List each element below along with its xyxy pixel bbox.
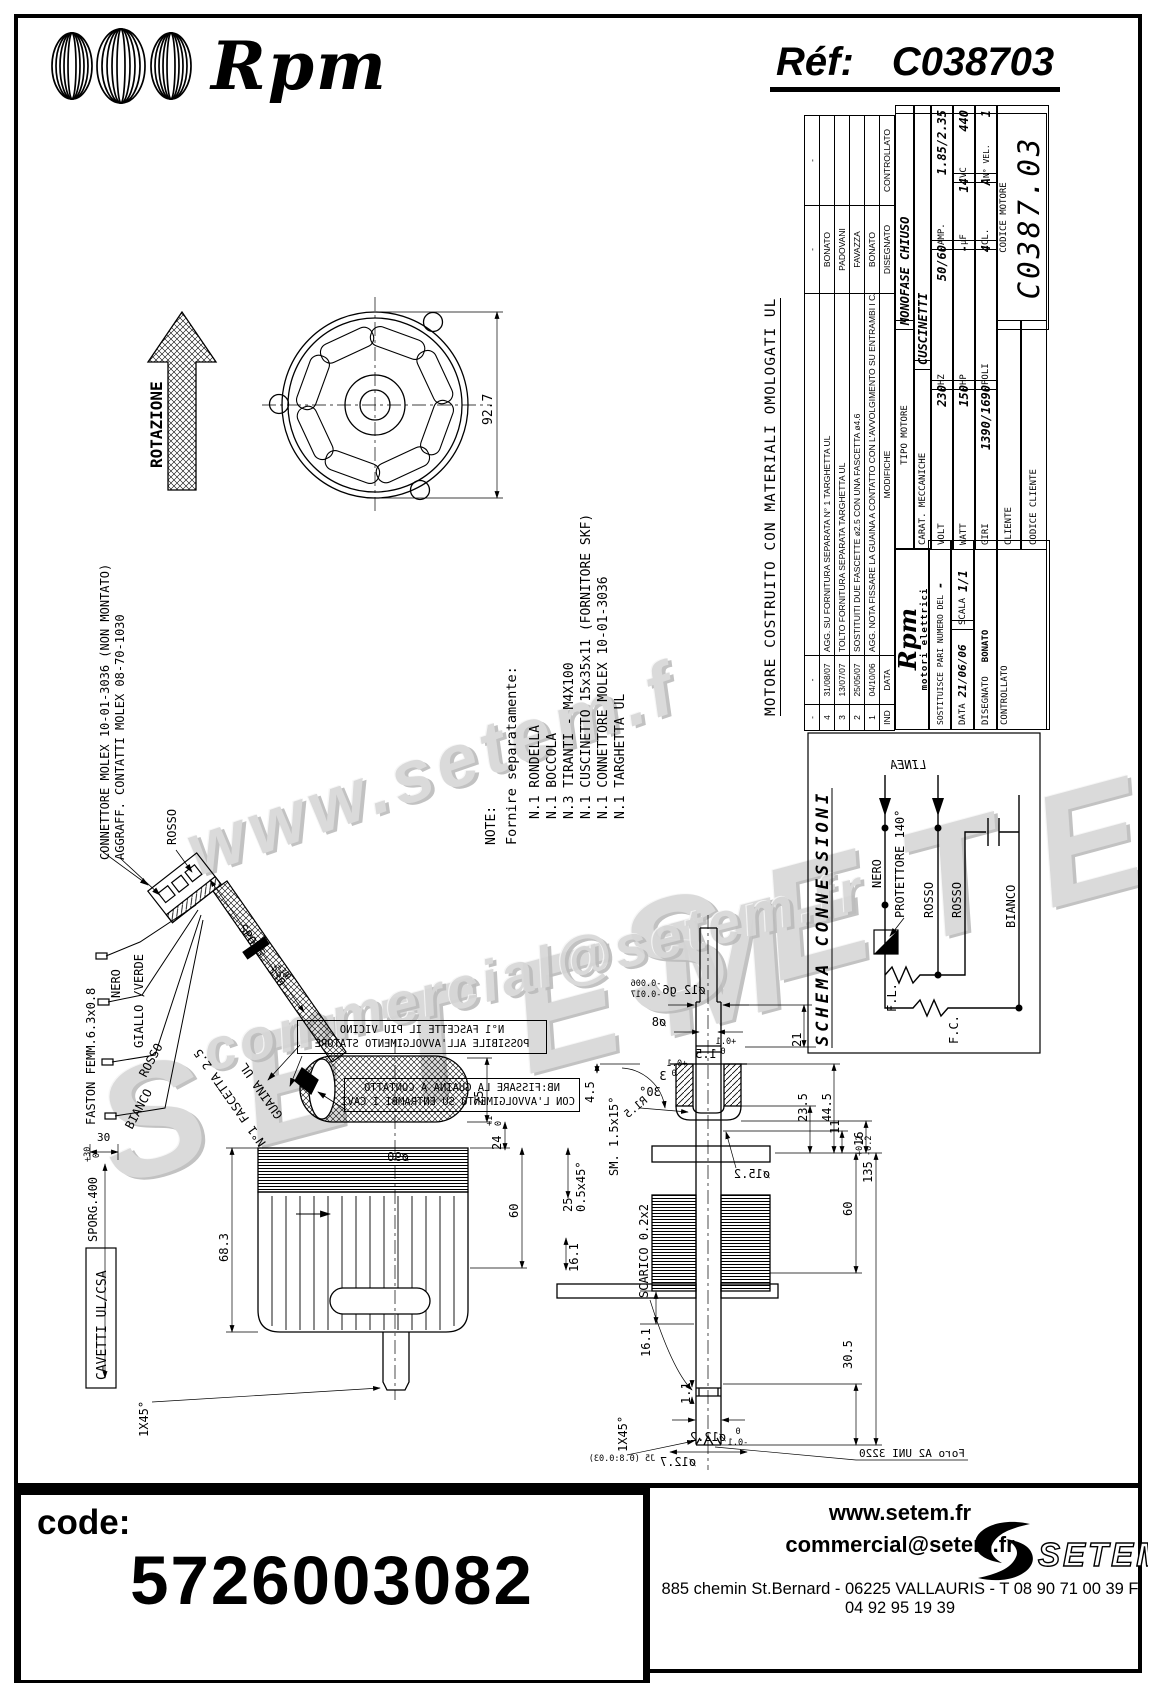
rev-header-ind: IND — [879, 704, 895, 731]
setem-logo: SETEM — [968, 1520, 1148, 1588]
rev-con — [849, 115, 865, 206]
rev-mod: TOLTO FORNITURA SEPARATA TARGHETTA UL — [834, 293, 850, 656]
rev-mod: AGG. NOTA FISSARE LA GUAINA A CONTATTO C… — [864, 293, 880, 656]
tb-scala: SCALA 1/1 — [950, 540, 975, 630]
nvel-value: 1 — [979, 110, 993, 117]
dim-dia12-2-tol-m: -0.1 — [728, 1438, 748, 1448]
hz-value: 50/60 — [935, 245, 949, 281]
note-item: N.3 TIRANTI - M4X100 — [561, 553, 578, 845]
tb-amp: AMP. 1.85/2.35 — [930, 105, 954, 250]
dim-3: 3 — [659, 1069, 666, 1083]
schema-fl: F.L. — [885, 983, 899, 1012]
dim-dia12-tol-b: -0.017 — [631, 990, 662, 1000]
tb-nvel: N° VEL. 1 — [974, 105, 998, 183]
hp-label: HP — [959, 374, 969, 385]
volt-label: VOLT — [937, 523, 947, 545]
dim-16-1-left: 16.1 — [567, 1243, 581, 1272]
note-item: N.1 RONDELLA — [527, 553, 544, 845]
dim-dia12-7: ø12.7 — [660, 1455, 696, 1469]
code-value: 5726003082 — [21, 1541, 643, 1620]
rev-date: 31/08/07 — [819, 655, 835, 705]
rev-ind: 1 — [864, 704, 880, 731]
sost-value: - — [933, 582, 947, 589]
dim-1-5-tol-m: 0 — [720, 1047, 725, 1057]
revision-table: - - - - 4 31/08/07 AGG. SU FORNITURA SEP… — [805, 115, 895, 730]
code-label: code: — [37, 1503, 643, 1543]
tb-tipo-value: MONOFASE CHIUSO — [895, 105, 915, 330]
schema-rosso-2: ROSSO — [950, 882, 964, 918]
drawing-sheet: www.setem.f SETEM SETEM commercial@setem… — [0, 0, 1154, 1683]
aggraff-label: AGGRAFF. CONTATTI MOLEX 08-70-1030 — [113, 548, 128, 860]
rev-con — [819, 115, 835, 206]
tb-watt: WATT 150 — [952, 380, 976, 550]
note-item: N.1 TARGHETTA UL — [612, 553, 629, 845]
rev-dis: BONATO — [819, 205, 835, 294]
rev-header-dis: DISEGNATO — [879, 205, 895, 294]
setem-logo-icon: SETEM — [968, 1520, 1148, 1584]
tb-uf: µF 14 — [952, 173, 976, 250]
schema-linea: LINEA — [890, 758, 926, 772]
rotazione-label: ROTAZIONE — [147, 381, 166, 468]
note-label: NOTE: — [483, 553, 500, 845]
rev-ind: - — [804, 704, 820, 731]
rev-header-mod: MODIFICHE — [879, 293, 895, 656]
tb-hz: HZ 50/60 — [930, 240, 954, 390]
rev-mod: AGG. SU FORNITURA SEPARATA N° 1 TARGHETT… — [819, 293, 835, 656]
rev-mod — [804, 293, 820, 656]
tb-sostituisce: SOSTITUISCE PARI NUMERO DEL - — [928, 540, 952, 730]
rev-header-con: CONTROLLATO — [879, 115, 895, 206]
note-item: N.1 CUSCINETTO 15x35x11 (FORNITORE SKF) — [578, 553, 595, 845]
label-sporg400: SPORG.400 — [86, 1177, 100, 1242]
dim-dia90: ø90 — [387, 1150, 409, 1164]
note-intro: Fornire separatamente: — [504, 553, 521, 845]
dim-4-5: 4.5 — [583, 1081, 597, 1103]
label-rosso-top: ROSSO — [165, 809, 179, 845]
title-block-heading: MOTORE COSTRUITO CON MATERIALI OMOLOGATI… — [763, 298, 781, 716]
dim-16-1-shaft: 16.1 — [639, 1328, 653, 1357]
dim-135-tol-m: -0.2 — [864, 1136, 874, 1156]
carat-label: CARAT. MECCANICHE — [918, 453, 928, 545]
connettore-label: CONNETTORE MOLEX 10-01-3036 (NON MONTATO… — [98, 548, 113, 860]
dim-r1-5: R1.5 — [621, 1094, 650, 1121]
rev-header-date: DATA — [879, 655, 895, 705]
disegnato-label: DISEGNATO — [981, 676, 991, 725]
note-item: N.1 BOCCOLA — [544, 553, 561, 845]
tb-disegnato: DISEGNATO BONATO — [973, 540, 998, 730]
note-box2-line2: CON L'AVVOLGIMENTO SU ENTRAMBI I CAVI — [349, 1095, 575, 1109]
schema-connessioni: LINEA NERO PROTETTORE 140° ROSSO ROSSO B… — [808, 733, 1040, 1053]
rev-ind: 2 — [849, 704, 865, 731]
giri-label: GIRI — [981, 523, 991, 545]
dim-68-3: 68.3 — [217, 1233, 231, 1262]
cl-label: CL. — [981, 229, 991, 245]
codice-cliente-label: CODICE CLIENTE — [1029, 469, 1039, 545]
tb-logo-brand: Rpm — [896, 608, 920, 670]
connector-assembly — [103, 850, 221, 923]
vc-label: VC — [959, 167, 969, 178]
schema-bianco: BIANCO — [1004, 885, 1018, 928]
hz-label: HZ — [937, 374, 947, 385]
dim-23-5: 23.5 — [796, 1093, 810, 1122]
codice-motore-value: C0387.03 — [1012, 136, 1046, 300]
amp-value: 1.85/2.35 — [935, 110, 949, 175]
cable-drawing — [86, 880, 380, 1402]
sost-label: SOSTITUISCE PARI NUMERO DEL — [936, 595, 945, 725]
tb-cliente: CLIENTE — [996, 320, 1022, 550]
title-block-main: Rpm motori elettrici SOSTITUISCE PARI NU… — [895, 113, 1047, 730]
data-value: 21/06/06 — [956, 644, 969, 697]
shaft-section-view — [557, 915, 968, 1470]
dim-24: 24 — [490, 1136, 504, 1150]
schema-protettore: PROTETTORE 140° — [893, 810, 907, 918]
connector-labels: CONNETTORE MOLEX 10-01-3036 (NON MONTATO… — [98, 548, 128, 860]
vc-value: 440 — [957, 110, 971, 132]
tb-giri: GIRI 1390/1690 — [974, 380, 998, 550]
amp-label: AMP. — [937, 223, 947, 245]
reference-number: Réf: C038703 — [770, 40, 1060, 92]
tb-codice-cliente: CODICE CLIENTE — [1020, 320, 1047, 550]
dim-24-tol-minus: 0 — [494, 1121, 504, 1126]
dim-1-5-tol-p: +0.1 — [716, 1037, 736, 1047]
tb-cl: CL. A — [974, 173, 998, 250]
dim-21: 21 — [790, 1033, 804, 1047]
rotation-arrow: ROTAZIONE — [147, 312, 216, 490]
poli-label: POLI — [981, 363, 991, 385]
dim-dia12-g6: ø12 g6 — [662, 983, 705, 997]
code-box: code: 5726003082 — [14, 1488, 650, 1683]
tb-vc: VC 440 — [952, 105, 976, 183]
label-sporg400-tol-m: 0 — [92, 1153, 102, 1158]
rev-con — [864, 115, 880, 206]
uf-label: µF — [959, 234, 969, 245]
codice-motore-label: CODICE MOTORE — [999, 182, 1009, 252]
tb-data: DATA 21/06/06 — [950, 620, 975, 730]
tb-logo-cell: Rpm motori elettrici — [895, 548, 930, 730]
dim-1-1: 1.1 — [679, 1382, 693, 1404]
rev-date: 04/10/06 — [864, 655, 880, 705]
label-bianco-wire: BIANCO — [122, 1087, 155, 1132]
rpm-brand-text: Rpm — [211, 33, 388, 99]
mirrored-note-box-1: N°1 FASCETTE IL PIU VICINO POSSIBILE ALL… — [297, 1020, 547, 1054]
schema-rosso-1: ROSSO — [922, 882, 936, 918]
label-cavetti: CAVETTI UL/CSA — [95, 1270, 110, 1380]
note-box2-line1: NB:FISSARE LA GUAINA A CONTATTO — [349, 1081, 575, 1095]
rev-dis: - — [804, 205, 820, 294]
rev-mod: SOSTITUITI DUE FASCETTE ø2.5 CON UNA FAS… — [849, 293, 865, 656]
schema-title: SCHEMA CONNESSIONI — [813, 790, 833, 1046]
dim-30-5: 30.5 — [841, 1340, 855, 1369]
tb-poli: POLI 4 — [974, 240, 998, 390]
dim-135: 135 — [861, 1161, 875, 1183]
dim-60-body: 60 — [507, 1204, 521, 1218]
schema-nero: NERO — [870, 859, 884, 888]
rev-date: - — [804, 655, 820, 705]
dim-3-tol-m: 0 — [671, 1069, 676, 1079]
rev-date: 13/07/07 — [834, 655, 850, 705]
label-giallo-verde: GIALLO /VERDE — [132, 954, 146, 1048]
dim-dia12-2: ø12.2 — [690, 1430, 726, 1444]
scala-label: SCALA — [958, 598, 968, 625]
controllato-label: CONTROLLATO — [1000, 665, 1010, 725]
label-30: 30 — [97, 1131, 110, 1144]
note-item: N.1 CONNETTORE MOLEX 10-01-3036 — [595, 553, 612, 845]
carat-value: CUSCINETTI — [916, 293, 930, 365]
dim-44-5: 44.5 — [820, 1093, 834, 1122]
tb-volt: VOLT 230 — [930, 380, 954, 550]
rev-dis: BONATO — [864, 205, 880, 294]
rev-ind: 4 — [819, 704, 835, 731]
setem-logo-text: SETEM — [1038, 1536, 1148, 1573]
rev-dis: PADOVANI — [834, 205, 850, 294]
tipo-motore-label: TIPO MOTORE — [900, 405, 910, 465]
dim-foro: Foro A2 UNI 3220 — [859, 1447, 965, 1460]
cliente-label: CLIENTE — [1004, 507, 1014, 545]
dim-dia12-2-tol-p: 0 — [735, 1427, 740, 1437]
note-box1-line2: POSSIBILE ALL'AVVOLGIMENTO STATORE — [302, 1037, 542, 1051]
dim-0-5x45: 0.5x45° — [574, 1161, 588, 1212]
rev-ind: 3 — [834, 704, 850, 731]
rpm-logo: Rpm — [38, 26, 388, 106]
tb-tipo-label: TIPO MOTORE — [895, 320, 915, 550]
title-block: MOTORE COSTRUITO CON MATERIALI OMOLOGATI… — [745, 115, 1045, 730]
label-faston: FASTON FEMM.6.3x0.8 — [84, 988, 98, 1125]
dim-sm: SM. 1.5x15° — [607, 1097, 621, 1176]
dim-92-7: 92.7 — [481, 394, 496, 425]
dim-25-shaft: 25 — [561, 1198, 575, 1212]
giri-value: 1390/1690 — [979, 385, 993, 450]
dim-1x45-left: 1X45° — [137, 1401, 151, 1437]
tb-hp: HP - — [952, 240, 976, 390]
scala-value: 1/1 — [956, 570, 970, 592]
watt-label: WATT — [959, 523, 969, 545]
rev-con — [834, 115, 850, 206]
dim-j5: J5 (0.8:0.03) — [589, 1454, 656, 1464]
dim-scarico: SCARICO 0.2x2 — [637, 1204, 651, 1298]
rev-con: - — [804, 115, 820, 206]
cable-labels: ROSSO FASTON FEMM.6.3x0.8 NERO GIALLO /V… — [83, 809, 293, 1380]
ref-value: C038703 — [892, 40, 1054, 85]
label-nero: NERO — [109, 969, 123, 998]
dim-60-shaft: 60 — [841, 1202, 855, 1216]
dim-dia12-tol-a: -0.006 — [631, 979, 662, 989]
dim-1-5: 1.5 — [695, 1047, 717, 1061]
note-box1-line1: N°1 FASCETTE IL PIU VICINO — [302, 1023, 542, 1037]
dim-1x45-shaft: 1X45° — [616, 1416, 630, 1452]
disegnato-value: BONATO — [981, 630, 991, 663]
dim-dia15-2: ø15.2 — [734, 1167, 770, 1181]
rev-date: 25/05/07 — [849, 655, 865, 705]
schema-fc: F.C. — [947, 1015, 961, 1044]
tipo-motore-value: MONOFASE CHIUSO — [898, 217, 912, 325]
tb-codice-motore: CODICE MOTORE C0387.03 — [996, 105, 1049, 330]
notes-block: NOTE: Fornire separatamente: N.1 RONDELL… — [483, 553, 683, 845]
ref-label: Réf: — [776, 40, 854, 85]
data-label: DATA — [958, 703, 968, 725]
motor-face-view — [262, 297, 490, 515]
dim-3-tol-p: +0.1 — [667, 1059, 687, 1069]
rpm-coils-icon — [38, 26, 203, 106]
tb-controllato: CONTROLLATO — [996, 540, 1050, 730]
nvel-label: N° VEL. — [982, 144, 991, 178]
dim-dia8: ø8 — [652, 1015, 666, 1029]
mirrored-note-box-2: NB:FISSARE LA GUAINA A CONTATTO CON L'AV… — [344, 1078, 580, 1112]
rev-dis: FAVAZZA — [849, 205, 865, 294]
